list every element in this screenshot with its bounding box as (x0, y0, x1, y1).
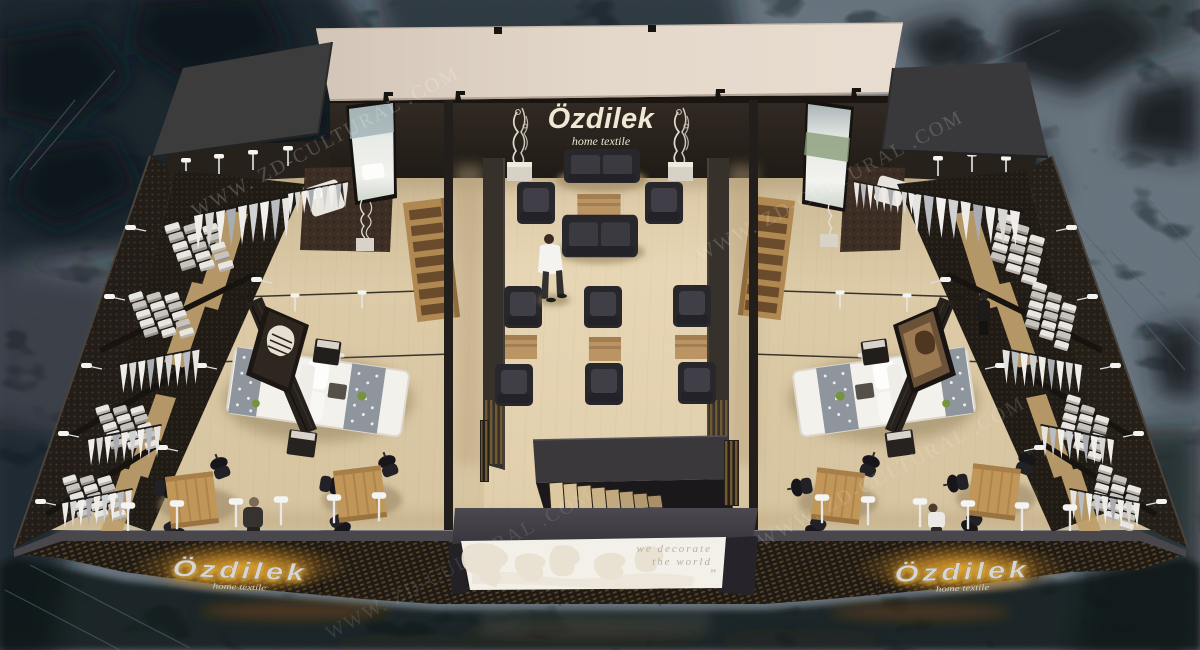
svg-text:home textile: home textile (572, 134, 631, 148)
svg-text:”: ” (710, 566, 716, 581)
svg-text:Özdilek: Özdilek (172, 555, 308, 586)
svg-text:the world: the world (652, 556, 712, 568)
svg-text:Özdilek: Özdilek (894, 556, 1030, 587)
svg-text:home textile: home textile (936, 583, 990, 594)
svg-text:Özdilek: Özdilek (548, 102, 656, 135)
svg-text:we decorate: we decorate (637, 543, 712, 555)
svg-text:home textile: home textile (213, 582, 267, 593)
